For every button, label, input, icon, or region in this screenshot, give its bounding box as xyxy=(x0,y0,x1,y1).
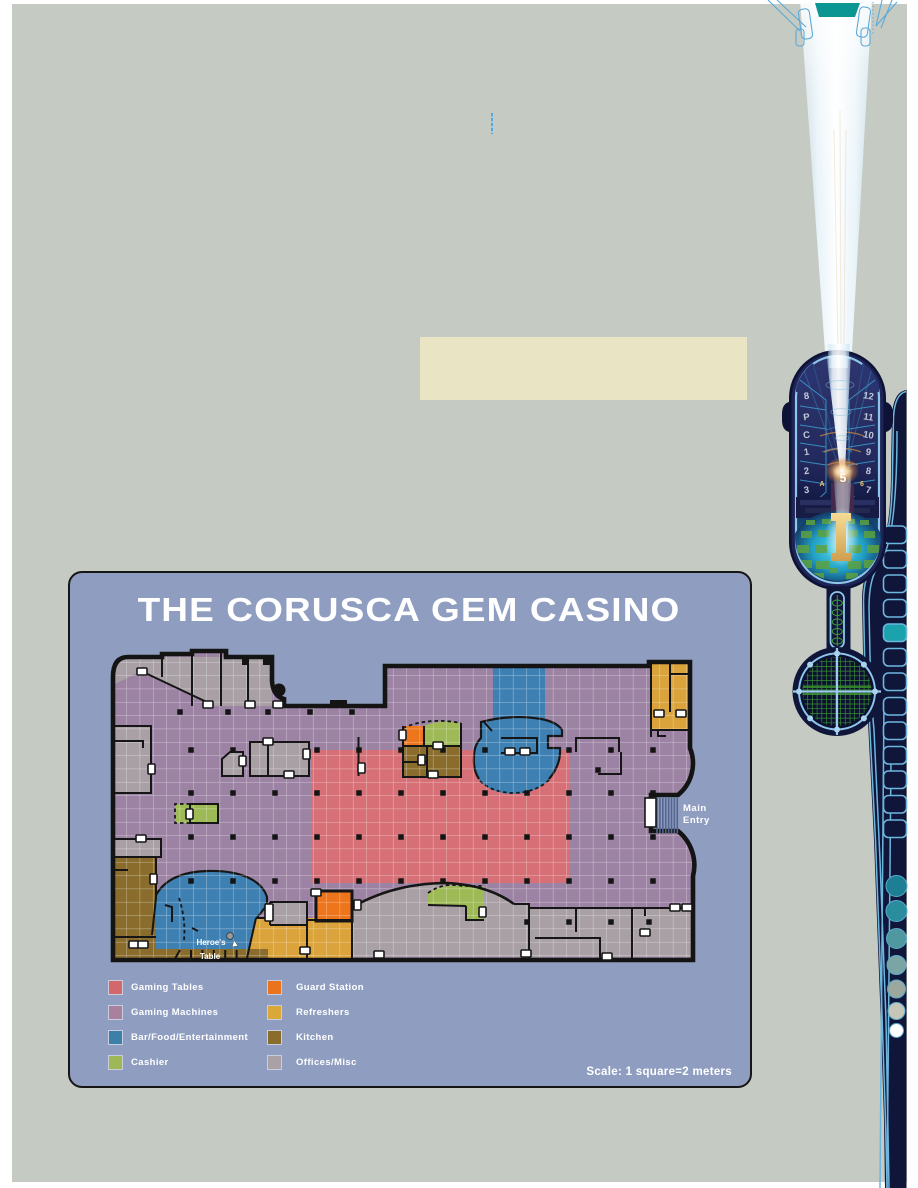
svg-text:Table: Table xyxy=(200,952,221,961)
svg-text:Main: Main xyxy=(683,803,707,814)
svg-text:12: 12 xyxy=(862,390,874,403)
svg-text:Entry: Entry xyxy=(683,815,710,826)
svg-text:5: 5 xyxy=(840,471,847,485)
svg-text:Heroe's: Heroe's xyxy=(196,938,226,947)
svg-text:10: 10 xyxy=(862,429,874,442)
svg-text:6: 6 xyxy=(860,481,864,488)
svg-text:A: A xyxy=(819,481,824,488)
